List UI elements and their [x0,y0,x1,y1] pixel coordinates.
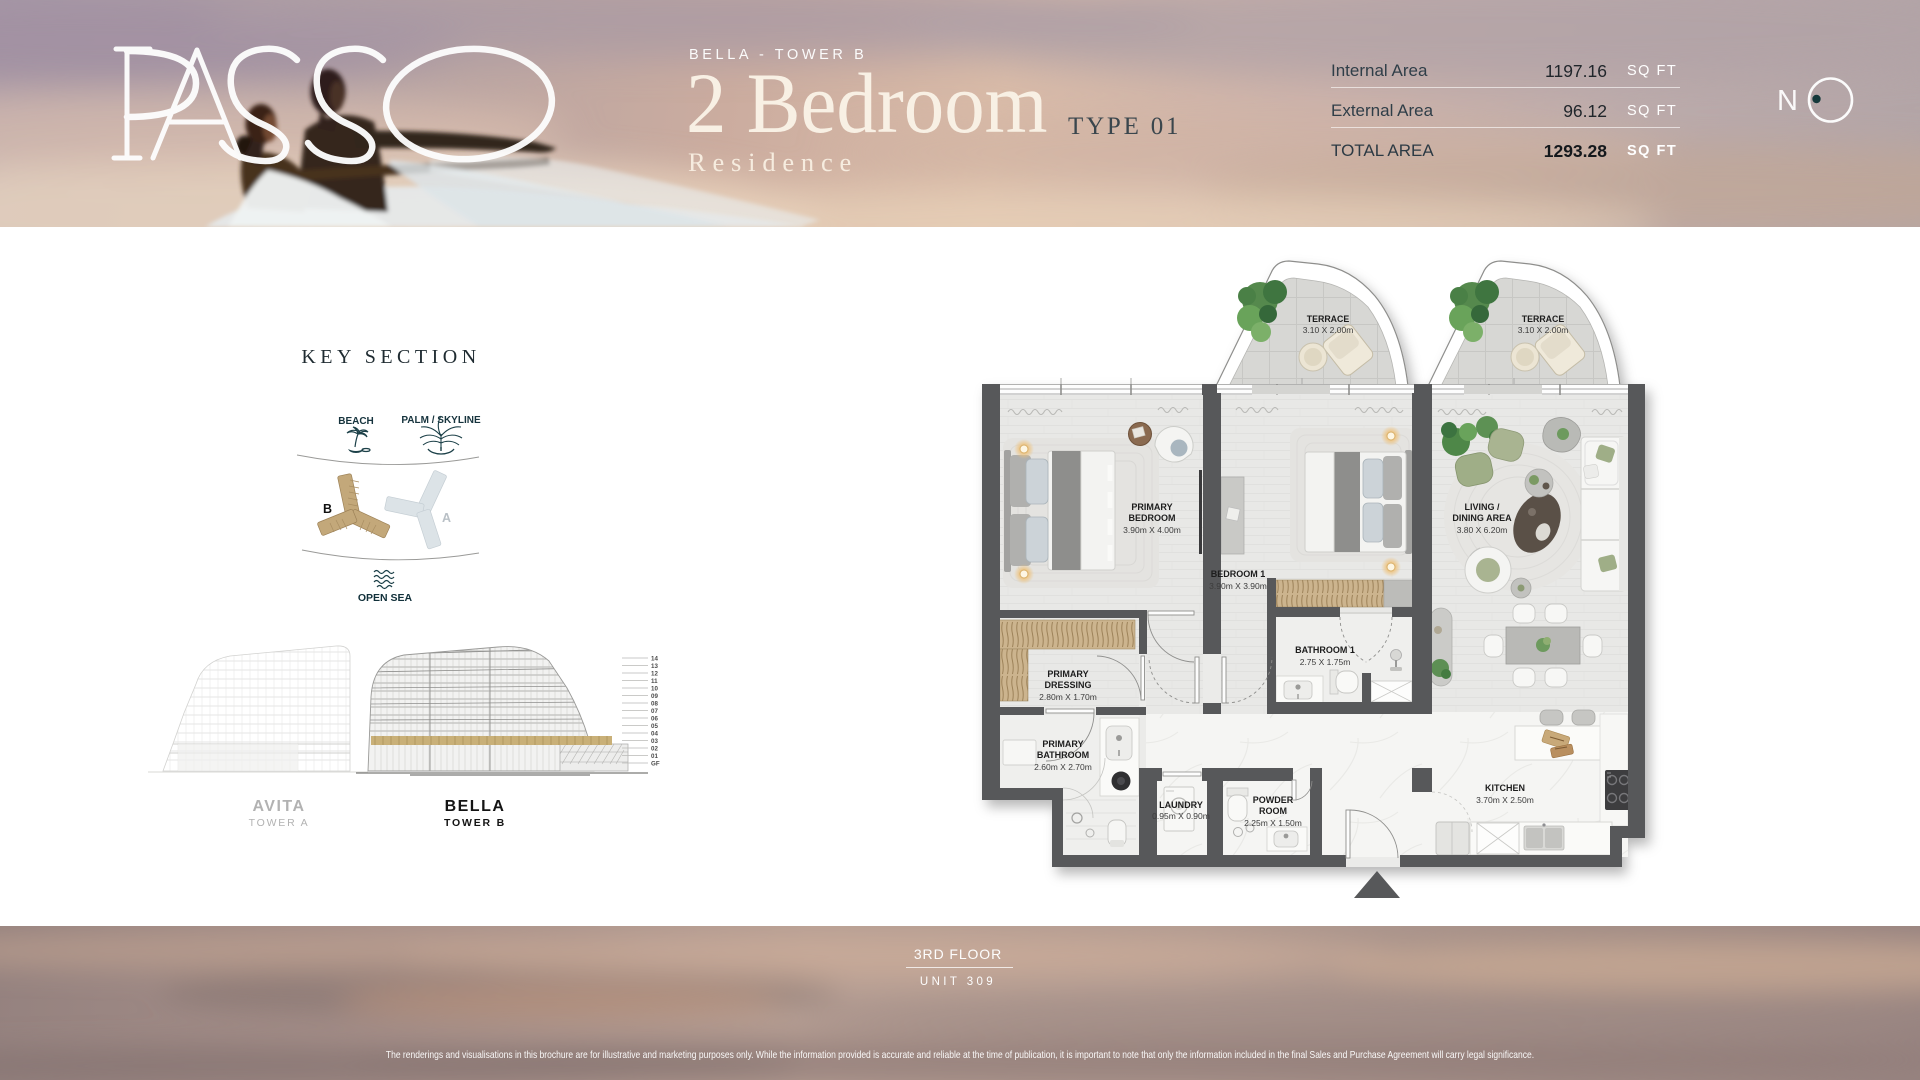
svg-text:08: 08 [651,701,658,708]
svg-text:14: 14 [651,656,658,663]
svg-text:LIVING /: LIVING / [1464,502,1500,512]
svg-text:03: 03 [651,738,658,745]
svg-text:09: 09 [651,693,658,700]
svg-text:PRIMARY: PRIMARY [1047,669,1088,679]
svg-text:3.90m X 4.00m: 3.90m X 4.00m [1123,525,1181,535]
svg-text:PRIMARY: PRIMARY [1042,739,1083,749]
svg-text:GF: GF [651,761,660,768]
svg-text:2.75 X 1.75m: 2.75 X 1.75m [1300,657,1351,667]
svg-text:3.90m X 3.90m: 3.90m X 3.90m [1209,581,1267,591]
svg-text:2.25m X 1.50m: 2.25m X 1.50m [1244,818,1302,828]
svg-text:B: B [323,502,332,516]
svg-text:TERRACE: TERRACE [1307,314,1350,324]
svg-text:3.10 X 2.00m: 3.10 X 2.00m [1303,325,1354,335]
svg-text:ROOM: ROOM [1259,806,1287,816]
svg-text:DRESSING: DRESSING [1044,680,1091,690]
svg-text:PRIMARY: PRIMARY [1131,502,1172,512]
svg-text:07: 07 [651,708,658,715]
svg-text:BEACH: BEACH [338,416,374,427]
svg-text:04: 04 [651,731,658,738]
svg-text:N: N [1777,85,1798,117]
svg-text:10: 10 [651,686,658,693]
svg-text:BEDROOM: BEDROOM [1129,513,1176,523]
svg-text:3.70m X 2.50m: 3.70m X 2.50m [1476,795,1534,805]
svg-text:11: 11 [651,678,658,685]
svg-text:BELLA: BELLA [445,798,506,815]
svg-text:06: 06 [651,716,658,723]
svg-text:LAUNDRY: LAUNDRY [1159,800,1203,810]
svg-text:TOWER A: TOWER A [249,817,310,829]
svg-text:2.80m X 1.70m: 2.80m X 1.70m [1039,692,1097,702]
svg-text:A: A [442,511,451,525]
svg-text:BATHROOM: BATHROOM [1037,750,1089,760]
svg-text:2.60m X 2.70m: 2.60m X 2.70m [1034,762,1092,772]
svg-text:05: 05 [651,723,658,730]
svg-text:BATHROOM 1: BATHROOM 1 [1295,645,1355,655]
svg-text:3.80 X 6.20m: 3.80 X 6.20m [1457,525,1508,535]
svg-text:BEDROOM 1: BEDROOM 1 [1211,569,1266,579]
svg-text:13: 13 [651,663,658,670]
svg-text:02: 02 [651,746,658,753]
svg-text:01: 01 [651,753,658,760]
svg-text:POWDER: POWDER [1253,795,1294,805]
svg-text:AVITA: AVITA [252,798,305,815]
svg-text:OPEN SEA: OPEN SEA [358,592,413,604]
svg-text:0.95m X 0.90m: 0.95m X 0.90m [1152,811,1210,821]
svg-text:TERRACE: TERRACE [1522,314,1565,324]
svg-text:3.10 X 2.00m: 3.10 X 2.00m [1518,325,1569,335]
svg-text:DINING AREA: DINING AREA [1452,513,1512,523]
svg-text:12: 12 [651,671,658,678]
svg-text:KITCHEN: KITCHEN [1485,783,1525,793]
svg-text:KEY SECTION: KEY SECTION [301,346,480,368]
svg-text:TOWER B: TOWER B [444,817,506,829]
